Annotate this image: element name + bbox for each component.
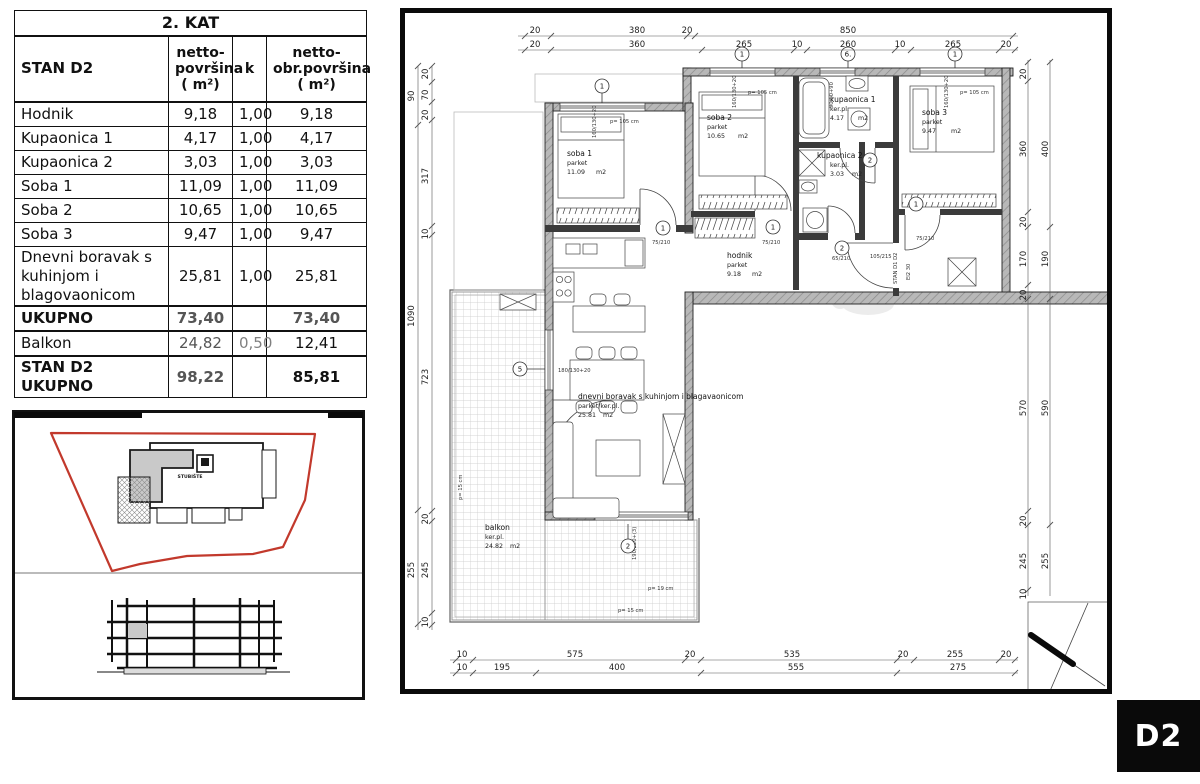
svg-text:20: 20 xyxy=(421,69,431,80)
keyplan-topbar-left xyxy=(14,412,142,418)
svg-text:dnevni boravak s kuhinjom i bl: dnevni boravak s kuhinjom i blagavaonico… xyxy=(578,392,743,401)
svg-text:260: 260 xyxy=(840,40,856,50)
window-size: 160/130+20 xyxy=(732,76,738,109)
svg-text:m2: m2 xyxy=(951,128,961,135)
door-size: 105/215 xyxy=(870,254,892,260)
svg-text:20: 20 xyxy=(421,514,431,525)
unit-badge-label: D2 xyxy=(1135,719,1183,754)
shaft xyxy=(948,258,976,286)
kitchen-island xyxy=(573,294,645,332)
window-soba3 xyxy=(920,68,985,76)
svg-text:20: 20 xyxy=(1001,40,1012,50)
svg-text:6.: 6. xyxy=(845,51,852,59)
svg-text:soba 2: soba 2 xyxy=(707,113,732,122)
door-size: 75/210 xyxy=(652,240,670,246)
table-row: Soba 210,651,0010,65 xyxy=(15,199,367,223)
svg-text:255: 255 xyxy=(407,562,417,578)
svg-text:20: 20 xyxy=(685,650,696,660)
svg-text:400: 400 xyxy=(609,663,625,673)
table-total-row: UKUPNO73,4073,40 xyxy=(15,306,367,331)
svg-text:20: 20 xyxy=(898,650,909,660)
coffee-table xyxy=(596,440,640,476)
keyplan-topbar-right xyxy=(328,412,363,418)
svg-text:1: 1 xyxy=(740,51,744,59)
svg-text:2: 2 xyxy=(868,157,872,165)
svg-text:25.81: 25.81 xyxy=(578,412,596,419)
svg-text:soba 1: soba 1 xyxy=(567,149,592,158)
section-highlight-cell xyxy=(128,624,147,638)
svg-text:590: 590 xyxy=(1041,400,1051,416)
door-soba3 xyxy=(905,215,940,250)
svg-text:10: 10 xyxy=(457,663,468,673)
label-dnevni: dnevni boravak s kuhinjom i blagavaonico… xyxy=(578,392,743,419)
parapet-note: p= 15 cm xyxy=(618,608,643,614)
svg-text:535: 535 xyxy=(784,650,800,660)
svg-text:360: 360 xyxy=(629,40,645,50)
svg-text:20: 20 xyxy=(1019,516,1029,527)
table-grandtotal-row: STAN D2 UKUPNO98,2285,81 xyxy=(15,356,367,397)
window-size: 160/130+20 xyxy=(592,106,598,139)
svg-text:245: 245 xyxy=(421,562,431,578)
svg-text:ker.pl.: ker.pl. xyxy=(485,534,504,541)
table-title-row: 2. KAT xyxy=(15,11,367,37)
svg-text:kupaonica 2: kupaonica 2 xyxy=(817,151,863,160)
svg-text:20: 20 xyxy=(530,40,541,50)
table-row: Hodnik9,181,009,18 xyxy=(15,102,367,127)
svg-text:24.82: 24.82 xyxy=(485,543,503,550)
col-netto: netto- površina ( m²) xyxy=(169,36,233,102)
svg-text:10: 10 xyxy=(421,229,431,240)
door-entrance xyxy=(847,243,893,288)
stove xyxy=(553,272,574,302)
wardrobe-soba2 xyxy=(699,195,787,209)
unit-badge: D2 xyxy=(1117,700,1200,772)
svg-text:10: 10 xyxy=(457,650,468,660)
entrance-label: STAN D1 D2 xyxy=(893,253,899,284)
svg-text:20: 20 xyxy=(1001,650,1012,660)
svg-text:70: 70 xyxy=(421,90,431,101)
table-row: Kupaonica 23,031,003,03 xyxy=(15,151,367,175)
svg-text:m2: m2 xyxy=(752,271,762,278)
svg-text:5: 5 xyxy=(518,366,522,374)
table-row: Kupaonica 14,171,004,17 xyxy=(15,127,367,151)
window-living xyxy=(545,330,553,390)
svg-text:20: 20 xyxy=(1019,217,1029,228)
svg-text:265: 265 xyxy=(945,40,961,50)
parapet-note: p= 15 cm xyxy=(458,475,464,500)
floor-title: 2. KAT xyxy=(15,11,367,37)
svg-text:m2: m2 xyxy=(858,115,868,122)
svg-text:ker.pl.: ker.pl. xyxy=(830,162,849,169)
svg-text:10: 10 xyxy=(421,617,431,628)
fire-rating-label: EI2 30 xyxy=(906,264,912,280)
svg-text:4.17: 4.17 xyxy=(830,115,844,122)
svg-text:10: 10 xyxy=(792,40,803,50)
svg-text:570: 570 xyxy=(1019,400,1029,416)
svg-text:kupaonica 1: kupaonica 1 xyxy=(830,95,876,104)
svg-text:575: 575 xyxy=(567,650,583,660)
svg-text:1: 1 xyxy=(771,224,775,232)
svg-text:190: 190 xyxy=(1041,251,1051,267)
svg-text:255: 255 xyxy=(947,650,963,660)
svg-text:1: 1 xyxy=(953,51,957,59)
svg-text:195: 195 xyxy=(494,663,510,673)
svg-text:m2: m2 xyxy=(596,169,606,176)
parapet-note: p= 105 cm xyxy=(610,119,639,125)
tv-unit xyxy=(663,414,685,484)
svg-text:2: 2 xyxy=(626,543,630,551)
svg-text:380: 380 xyxy=(629,26,645,36)
sink-kup1 xyxy=(846,76,868,91)
svg-text:1: 1 xyxy=(661,225,665,233)
col-obr: netto- obr.površina ( m²) xyxy=(267,36,367,102)
table-row: Dnevni boravak s kuhinjom i blagovaonico… xyxy=(15,247,367,307)
adjacent-terrace-outline xyxy=(454,112,543,290)
window-size: 180/130+20 xyxy=(558,368,591,374)
door-size: 65/210 xyxy=(832,256,850,262)
svg-text:9.47: 9.47 xyxy=(922,128,936,135)
window-size: 160/130+20 xyxy=(944,76,950,109)
svg-text:parket/ker.pl.: parket/ker.pl. xyxy=(578,403,619,410)
svg-text:11.09: 11.09 xyxy=(567,169,585,176)
svg-text:m2: m2 xyxy=(738,133,748,140)
svg-text:balkon: balkon xyxy=(485,523,510,532)
svg-text:317: 317 xyxy=(421,168,431,184)
svg-text:9.18: 9.18 xyxy=(727,271,741,278)
svg-text:20: 20 xyxy=(530,26,541,36)
svg-text:parket: parket xyxy=(922,119,943,126)
svg-text:m2: m2 xyxy=(852,171,862,178)
svg-text:m2: m2 xyxy=(603,412,613,419)
svg-text:555: 555 xyxy=(788,663,804,673)
svg-text:723: 723 xyxy=(421,369,431,385)
svg-text:3.03: 3.03 xyxy=(830,171,844,178)
parapet-note: p= 19 cm xyxy=(648,586,673,592)
svg-text:1090: 1090 xyxy=(407,305,417,327)
svg-text:265: 265 xyxy=(736,40,752,50)
door-kupaonica2 xyxy=(828,206,855,233)
sink-kup2 xyxy=(799,180,817,193)
svg-text:20: 20 xyxy=(421,110,431,121)
key-plan: STUBIŠTE xyxy=(12,410,365,700)
kitchen-counter xyxy=(553,238,645,268)
window-soba1 xyxy=(560,103,645,111)
area-table: 2. KAT STAN D2 netto- površina ( m²) k n… xyxy=(14,10,367,398)
label-hodnik: hodnikparket9.18m2 xyxy=(727,251,762,278)
svg-text:m2: m2 xyxy=(510,543,520,550)
svg-text:parket: parket xyxy=(567,160,588,167)
col-unit: STAN D2 xyxy=(15,36,169,102)
svg-text:255: 255 xyxy=(1041,553,1051,569)
wardrobe-soba1 xyxy=(557,208,639,223)
svg-text:360: 360 xyxy=(1019,141,1029,157)
svg-text:245: 245 xyxy=(1019,553,1029,569)
svg-text:90: 90 xyxy=(407,91,417,102)
svg-text:10.65: 10.65 xyxy=(707,133,725,140)
toilet-kup2 xyxy=(803,208,827,232)
door-size: 75/210 xyxy=(916,236,934,242)
parapet-note: p= 105 cm xyxy=(748,90,777,96)
staircase-label: STUBIŠTE xyxy=(178,473,203,480)
svg-text:hodnik: hodnik xyxy=(727,251,753,260)
svg-text:1: 1 xyxy=(914,201,918,209)
balcony xyxy=(450,290,699,622)
window-kupaonica1 xyxy=(820,68,855,76)
svg-text:170: 170 xyxy=(1019,251,1029,267)
svg-text:parket: parket xyxy=(707,124,728,131)
svg-text:parket: parket xyxy=(727,262,748,269)
door-size: 75/210 xyxy=(762,240,780,246)
floorplan-sheet: { "floor_label": "2. KAT", "area_table":… xyxy=(0,0,1200,784)
svg-text:20: 20 xyxy=(682,26,693,36)
svg-text:2: 2 xyxy=(840,245,844,253)
svg-text:20: 20 xyxy=(1019,69,1029,80)
table-header-row: STAN D2 netto- površina ( m²) k netto- o… xyxy=(15,36,367,102)
roof-edge-outline xyxy=(535,74,691,102)
window-soba2 xyxy=(710,68,775,76)
svg-text:1: 1 xyxy=(600,83,604,91)
bathtub xyxy=(799,78,829,138)
window-size: 90/60+90 xyxy=(829,82,835,108)
table-row: Soba 111,091,0011,09 xyxy=(15,175,367,199)
svg-text:400: 400 xyxy=(1041,141,1051,157)
table-row: Balkon24,820,5012,41 xyxy=(15,331,367,356)
svg-text:275: 275 xyxy=(950,663,966,673)
apartment-plan: soba 1parket11.09m2 soba 2parket10.65m2 … xyxy=(400,8,1112,694)
door-soba1 xyxy=(640,189,676,225)
table-row: Soba 39,471,009,47 xyxy=(15,223,367,247)
parapet-note: p= 105 cm xyxy=(960,90,989,96)
north-arrow xyxy=(1028,602,1109,691)
door-bubbles xyxy=(656,153,923,255)
svg-text:850: 850 xyxy=(840,26,856,36)
svg-text:soba 3: soba 3 xyxy=(922,108,947,117)
svg-text:20: 20 xyxy=(1019,290,1029,301)
svg-text:10: 10 xyxy=(895,40,906,50)
svg-text:10: 10 xyxy=(1019,589,1029,600)
wardrobe-hodnik xyxy=(695,218,755,238)
